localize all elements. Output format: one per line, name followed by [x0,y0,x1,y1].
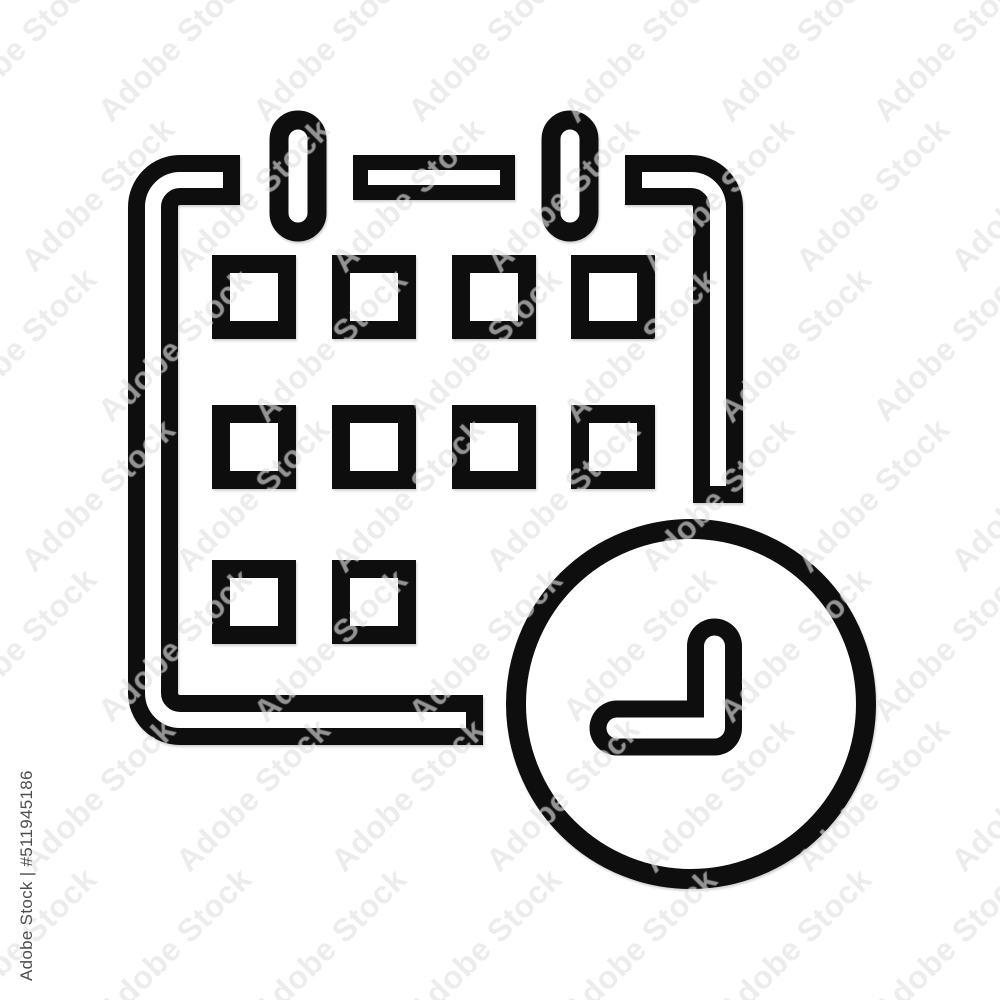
date-cell [341,569,407,635]
date-cell [580,414,646,480]
stock-image-preview: Adobe StockAdobe StockAdobe StockAdobe S… [0,0,1000,1000]
calendar-clock-icon [0,0,1000,1000]
date-cell [341,414,407,480]
date-cell [221,264,287,330]
date-cell [341,264,407,330]
calendar-date-row [221,414,646,480]
binder-ring-left-icon [279,120,317,232]
clock-icon [516,529,866,879]
watermark-corner-label: Adobe Stock | #511945186 [17,770,37,981]
date-cell [221,414,287,480]
calendar-date-row [221,569,407,635]
date-cell [221,569,287,635]
binder-ring-right-icon [551,120,589,232]
date-cell [461,414,527,480]
date-cell [461,264,527,330]
calendar-top-dash-icon [361,163,508,193]
date-cell [580,264,646,330]
calendar-date-row [221,264,646,330]
calendar-frame-left-band [153,180,483,720]
